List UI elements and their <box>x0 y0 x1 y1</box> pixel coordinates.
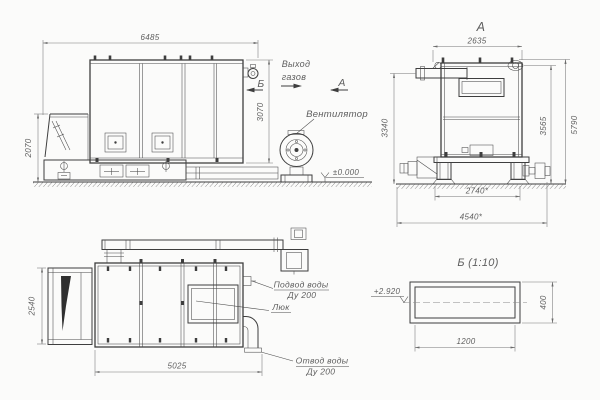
level-zero-text: ±0.000 <box>333 168 359 177</box>
section-marker-b: Б <box>246 78 265 92</box>
gas-outlet-line2: газов <box>282 72 306 82</box>
front-view-title: А <box>476 20 486 34</box>
dim-height-400: 400 <box>522 282 557 323</box>
dim-width-2635: 2635 <box>433 37 522 63</box>
boiler-body-outline <box>90 60 243 163</box>
dim-height-3340: 3340 <box>381 74 417 185</box>
dim-width-1200: 1200 <box>415 325 515 352</box>
water-drain-dn: Ду 200 <box>306 367 336 377</box>
detail-view-b: Б (1:10) +2.920 400 1200 <box>371 257 557 352</box>
gas-flow-arrow <box>294 84 303 89</box>
fan-label-text: Вентилятор <box>306 109 368 120</box>
front-view-a: А <box>381 20 580 227</box>
plan-boiler-body <box>95 259 243 347</box>
gas-outlet-line1: Выход <box>282 59 311 69</box>
detail-frame <box>403 282 527 323</box>
water-supply-callout: Подвод воды Ду 200 <box>243 277 329 301</box>
boiler-technical-drawing: 6485 3070 2070 Б Выход газов А <box>0 0 600 400</box>
level-2920-text: +2.920 <box>374 287 401 296</box>
drawing-canvas: 6485 3070 2070 Б Выход газов А <box>0 0 600 400</box>
ground-line-main <box>33 182 372 187</box>
level-mark-2920: +2.920 <box>371 287 408 303</box>
dim-3340: 3340 <box>381 118 390 137</box>
water-drain-label: Отвод воды <box>296 356 349 366</box>
water-drain: Отвод воды Ду 200 <box>243 317 349 377</box>
plan-air-duct <box>102 238 283 263</box>
marker-b-label: Б <box>257 78 264 90</box>
dim-400: 400 <box>539 295 548 309</box>
plan-view: 2540 5025 Подвод воды Ду 200 Люк Отвод <box>28 228 350 377</box>
plan-hopper <box>48 268 92 345</box>
gas-outlet-flange <box>243 65 258 79</box>
dim-1200: 1200 <box>457 337 476 346</box>
dim-4540: 4540* <box>460 213 483 222</box>
detail-title: Б (1:10) <box>457 257 498 269</box>
dim-2740: 2740* <box>465 187 489 196</box>
dim-2540: 2540 <box>28 296 37 316</box>
dim-2635: 2635 <box>467 37 487 46</box>
fan-label: Вентилятор <box>296 109 368 134</box>
plan-hatch <box>188 285 238 323</box>
furnace-door-left <box>105 133 126 152</box>
water-supply-dn: Ду 200 <box>287 290 317 300</box>
marker-a-label: А <box>337 77 345 89</box>
base-frame <box>44 160 278 180</box>
boiler-top-bolts <box>94 56 219 163</box>
dim-width-6485: 6485 <box>43 33 258 115</box>
water-supply-label: Подвод воды <box>274 280 329 290</box>
front-body <box>416 58 523 158</box>
fuel-hopper <box>45 114 88 160</box>
dim-3565: 3565 <box>539 116 548 135</box>
front-base <box>400 157 550 184</box>
dim-3070: 3070 <box>256 102 265 121</box>
view-marker-a: А <box>330 77 348 92</box>
plan-fan <box>281 228 308 275</box>
dim-5790: 5790 <box>570 115 579 134</box>
gas-outlet-label: Выход газов <box>281 59 310 88</box>
dim-2070: 2070 <box>24 138 33 158</box>
hatch-label: Люк <box>271 302 290 312</box>
dim-5025: 5025 <box>168 362 187 371</box>
furnace-door-right <box>152 133 173 152</box>
dim-length-5025: 5025 <box>95 350 262 376</box>
side-view: 6485 3070 2070 Б Выход газов А <box>24 33 372 187</box>
dim-6485: 6485 <box>141 33 160 42</box>
dim-depth-2540: 2540 <box>28 268 47 344</box>
dim-height-3070: 3070 <box>246 60 273 163</box>
level-mark-zero: ±0.000 <box>321 168 364 182</box>
hopper-chute-shadow <box>61 276 71 331</box>
fan <box>280 131 313 183</box>
